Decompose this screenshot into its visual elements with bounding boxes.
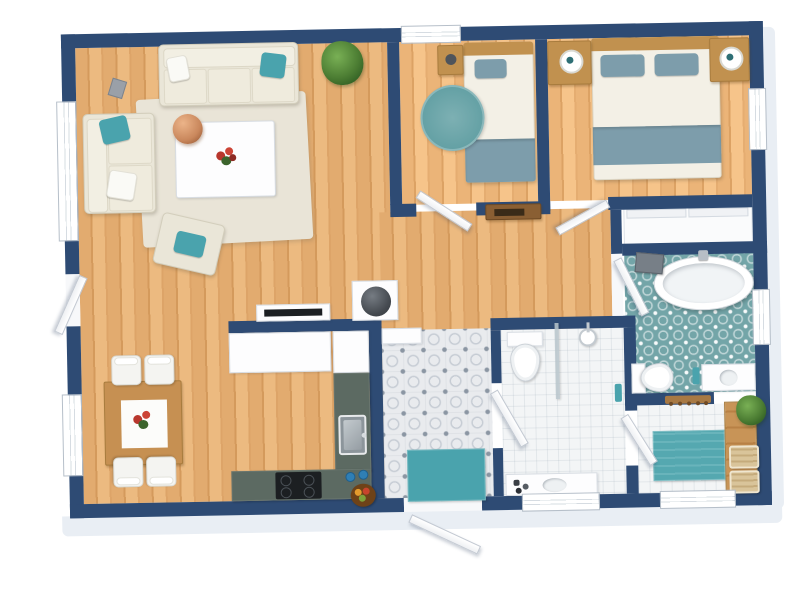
dining-chair bbox=[146, 456, 177, 487]
window-dining bbox=[62, 394, 84, 476]
wall-hall-a bbox=[390, 204, 416, 217]
dining-centerpiece bbox=[130, 409, 156, 431]
cooktop bbox=[275, 472, 322, 500]
window-living bbox=[56, 101, 79, 241]
hall-console bbox=[382, 328, 422, 345]
closet-sliding-door bbox=[626, 208, 686, 218]
kitchen-cabinet-run bbox=[229, 331, 332, 373]
master-nightstand-left bbox=[547, 40, 592, 85]
shower-bathroom-toilet bbox=[507, 331, 542, 382]
kitchen-sink bbox=[338, 415, 367, 456]
closet-sliding-door bbox=[688, 207, 748, 217]
floor-plan bbox=[0, 0, 800, 598]
main-bathroom-toilet bbox=[631, 361, 670, 394]
utility-plant bbox=[736, 395, 767, 426]
teal-towel bbox=[692, 367, 699, 384]
double-bed bbox=[591, 36, 722, 180]
dining-chair bbox=[111, 355, 142, 386]
window-utility bbox=[660, 490, 736, 509]
window-shower-bathroom bbox=[522, 492, 600, 511]
window-main-bathroom bbox=[752, 289, 771, 345]
living-plant bbox=[321, 41, 364, 86]
floor-plan-image bbox=[0, 0, 800, 598]
wall-shower-bathroom-right-b bbox=[626, 465, 639, 493]
bathroom-wall-cabinet bbox=[635, 252, 665, 274]
main-bathroom-vanity bbox=[701, 363, 756, 391]
window-master-bedroom bbox=[748, 88, 767, 150]
hall-wall-shelf bbox=[485, 203, 541, 220]
wicker-basket bbox=[729, 445, 759, 469]
sofa-pillow-teal bbox=[259, 52, 287, 79]
entry-doormat bbox=[407, 448, 486, 501]
tub-faucet bbox=[698, 250, 708, 260]
master-nightstand-right bbox=[709, 37, 750, 82]
window-small-bedroom bbox=[401, 25, 461, 44]
sofa-pillow-white bbox=[165, 54, 190, 83]
small-bedroom-nightstand bbox=[437, 45, 464, 75]
wall-hall-c bbox=[608, 194, 752, 210]
floor-corridor bbox=[379, 208, 612, 332]
wall-corridor-right bbox=[610, 210, 622, 254]
coat-rack bbox=[665, 395, 711, 404]
wood-stove bbox=[352, 280, 399, 321]
dining-chair bbox=[113, 457, 144, 488]
wall-shower-bathroom-left-b bbox=[493, 448, 504, 496]
loveseat-pillow-white bbox=[106, 169, 138, 201]
wall-shower-bathroom-left-a bbox=[491, 330, 502, 383]
flower-centerpiece bbox=[212, 145, 238, 167]
refrigerator bbox=[333, 331, 370, 374]
tv-flatscreen bbox=[264, 308, 322, 316]
utility-mat bbox=[653, 430, 726, 481]
teal-towel bbox=[615, 384, 622, 402]
dining-chair bbox=[144, 354, 175, 385]
